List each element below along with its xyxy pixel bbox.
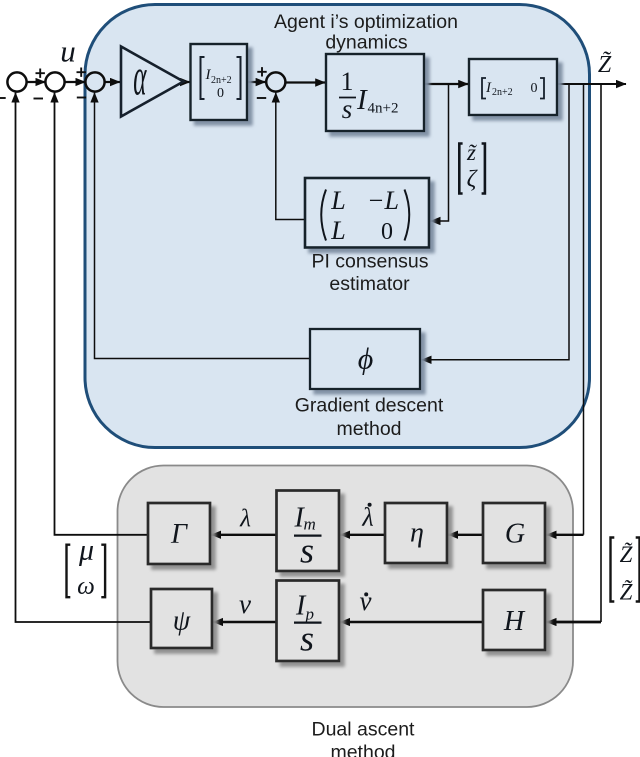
svg-text:estimator: estimator <box>329 273 410 295</box>
svg-text:Z̃: Z̃ <box>620 579 634 605</box>
svg-text:0: 0 <box>381 219 393 245</box>
svg-text:s: s <box>342 94 353 124</box>
svg-text:2n+2: 2n+2 <box>492 87 513 98</box>
svg-text:ν: ν <box>360 586 372 616</box>
svg-text:4n+2: 4n+2 <box>368 101 399 117</box>
svg-text:ω: ω <box>77 573 95 600</box>
svg-text:0: 0 <box>217 86 224 101</box>
svg-text:I: I <box>356 84 368 116</box>
svg-text:ψ: ψ <box>173 606 191 637</box>
svg-text:I: I <box>485 80 492 96</box>
svg-text:Agent i’s optimization: Agent i’s optimization <box>274 11 458 33</box>
svg-text:η: η <box>410 518 424 549</box>
svg-text:2n+2: 2n+2 <box>211 75 232 86</box>
svg-text:u: u <box>60 34 76 69</box>
svg-text:L: L <box>330 186 345 215</box>
svg-text:H: H <box>503 606 526 637</box>
svg-text:G: G <box>505 519 525 550</box>
svg-text:method: method <box>330 742 395 757</box>
svg-text:ϕ: ϕ <box>358 343 374 376</box>
svg-text:dynamics: dynamics <box>325 32 408 54</box>
svg-text:0: 0 <box>531 81 538 96</box>
svg-text:ν: ν <box>239 589 251 619</box>
svg-text:s: s <box>300 619 314 659</box>
svg-text:Z̃: Z̃ <box>620 541 634 567</box>
svg-text:λ: λ <box>361 502 373 531</box>
svg-text:L: L <box>330 216 345 245</box>
svg-text:1: 1 <box>341 67 354 96</box>
svg-text:method: method <box>336 418 401 440</box>
svg-text:PI consensus: PI consensus <box>311 251 428 273</box>
svg-text:s: s <box>300 531 314 571</box>
svg-text:−L: −L <box>367 186 399 215</box>
svg-text:λ: λ <box>239 506 251 533</box>
svg-text:z̃: z̃ <box>466 140 478 165</box>
svg-text:Gradient descent: Gradient descent <box>295 395 444 417</box>
svg-text:Γ: Γ <box>170 519 188 550</box>
svg-text:Z̃: Z̃ <box>598 51 612 78</box>
svg-text:Dual ascent: Dual ascent <box>312 719 416 741</box>
svg-text:α: α <box>133 47 147 106</box>
svg-text:μ: μ <box>78 534 94 567</box>
